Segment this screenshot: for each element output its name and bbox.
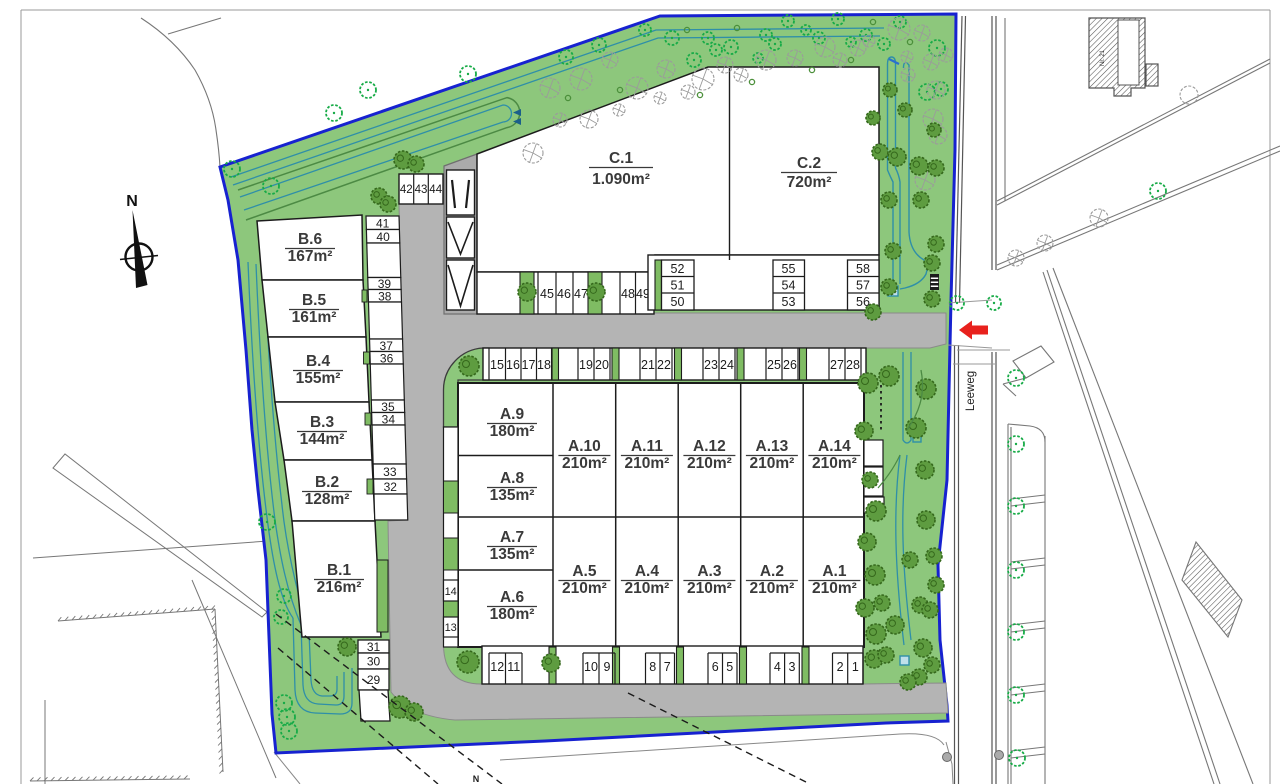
svg-text:11: 11 [507, 660, 520, 674]
svg-text:30: 30 [367, 655, 381, 669]
svg-text:180m²: 180m² [490, 423, 535, 440]
svg-text:B.4: B.4 [306, 353, 331, 370]
svg-text:5: 5 [726, 660, 733, 674]
svg-text:6: 6 [712, 660, 719, 674]
svg-text:B.6: B.6 [298, 231, 323, 248]
svg-text:A.11: A.11 [631, 438, 663, 455]
svg-text:210m²: 210m² [749, 580, 794, 597]
svg-text:A.5: A.5 [572, 563, 597, 580]
svg-text:B.5: B.5 [302, 292, 327, 309]
svg-text:A.14: A.14 [818, 438, 851, 455]
svg-text:44: 44 [429, 184, 442, 196]
svg-text:210m²: 210m² [812, 580, 857, 597]
svg-text:21: 21 [641, 358, 655, 372]
svg-text:47: 47 [574, 287, 588, 301]
svg-text:45: 45 [540, 287, 554, 301]
svg-text:28: 28 [846, 358, 860, 372]
svg-text:A.4: A.4 [635, 563, 660, 580]
svg-text:A.3: A.3 [697, 563, 722, 580]
svg-text:1.090m²: 1.090m² [592, 171, 650, 188]
svg-text:58: 58 [856, 262, 870, 276]
svg-text:210m²: 210m² [624, 455, 669, 472]
svg-text:210m²: 210m² [687, 455, 732, 472]
svg-text:33: 33 [383, 465, 397, 479]
svg-text:40: 40 [376, 230, 390, 244]
svg-text:31: 31 [367, 640, 381, 654]
svg-text:19: 19 [579, 358, 593, 372]
svg-text:48: 48 [621, 287, 635, 301]
svg-text:N: N [473, 774, 480, 784]
svg-text:8: 8 [649, 660, 656, 674]
svg-text:720m²: 720m² [787, 174, 832, 191]
svg-text:1: 1 [852, 660, 859, 674]
svg-text:210m²: 210m² [687, 580, 732, 597]
svg-text:N: N [126, 193, 138, 210]
svg-text:210m²: 210m² [562, 455, 607, 472]
svg-text:167m²: 167m² [288, 248, 333, 265]
svg-text:10: 10 [584, 660, 598, 674]
svg-text:210m²: 210m² [562, 580, 607, 597]
svg-text:Nr. 21: Nr. 21 [1100, 49, 1106, 66]
svg-text:B.1: B.1 [327, 562, 352, 579]
svg-text:A.13: A.13 [756, 438, 789, 455]
svg-text:34: 34 [382, 412, 396, 426]
svg-text:25: 25 [767, 358, 781, 372]
svg-text:54: 54 [782, 279, 796, 293]
svg-text:B.2: B.2 [315, 474, 339, 491]
svg-text:161m²: 161m² [292, 309, 337, 326]
svg-text:7: 7 [664, 660, 671, 674]
svg-text:22: 22 [657, 358, 671, 372]
svg-text:210m²: 210m² [812, 455, 857, 472]
svg-text:15: 15 [490, 358, 504, 372]
svg-text:23: 23 [704, 358, 718, 372]
svg-text:A.1: A.1 [822, 563, 847, 580]
svg-text:210m²: 210m² [749, 455, 794, 472]
svg-text:A.6: A.6 [500, 589, 525, 606]
svg-text:46: 46 [557, 287, 571, 301]
svg-text:A.12: A.12 [693, 438, 726, 455]
svg-text:180m²: 180m² [490, 606, 535, 623]
svg-text:C.1: C.1 [609, 150, 634, 167]
svg-text:13: 13 [445, 622, 457, 634]
svg-text:135m²: 135m² [490, 487, 535, 504]
svg-text:Leeweg: Leeweg [965, 371, 977, 411]
svg-text:42: 42 [400, 184, 413, 196]
svg-text:27: 27 [830, 358, 844, 372]
svg-text:41: 41 [376, 216, 390, 230]
svg-text:50: 50 [671, 295, 685, 309]
svg-text:57: 57 [856, 279, 870, 293]
svg-text:210m²: 210m² [624, 580, 669, 597]
svg-text:18: 18 [537, 358, 551, 372]
svg-text:135m²: 135m² [490, 546, 535, 563]
svg-text:A.9: A.9 [500, 406, 525, 423]
svg-text:14: 14 [445, 586, 457, 598]
svg-text:155m²: 155m² [296, 370, 341, 387]
svg-text:12: 12 [490, 660, 504, 674]
svg-text:A.2: A.2 [760, 563, 784, 580]
svg-text:43: 43 [415, 184, 428, 196]
svg-text:36: 36 [380, 351, 394, 365]
svg-text:3: 3 [788, 660, 795, 674]
svg-text:A.10: A.10 [568, 438, 601, 455]
svg-text:16: 16 [506, 358, 520, 372]
svg-text:4: 4 [774, 660, 781, 674]
svg-text:128m²: 128m² [305, 491, 350, 508]
svg-text:26: 26 [783, 358, 797, 372]
svg-text:38: 38 [378, 289, 392, 303]
svg-text:C.2: C.2 [797, 155, 821, 172]
svg-text:52: 52 [671, 262, 685, 276]
svg-text:2: 2 [837, 660, 844, 674]
svg-text:53: 53 [782, 295, 796, 309]
svg-text:B.3: B.3 [310, 414, 335, 431]
svg-text:216m²: 216m² [317, 579, 362, 596]
svg-text:9: 9 [604, 660, 611, 674]
svg-text:A.8: A.8 [500, 470, 525, 487]
svg-text:51: 51 [671, 279, 685, 293]
svg-text:144m²: 144m² [300, 431, 345, 448]
svg-text:A.7: A.7 [500, 529, 524, 546]
svg-text:20: 20 [595, 358, 609, 372]
svg-text:32: 32 [384, 480, 398, 494]
svg-text:24: 24 [720, 358, 734, 372]
svg-text:17: 17 [522, 358, 536, 372]
svg-text:55: 55 [782, 262, 796, 276]
svg-text:29: 29 [367, 673, 381, 687]
